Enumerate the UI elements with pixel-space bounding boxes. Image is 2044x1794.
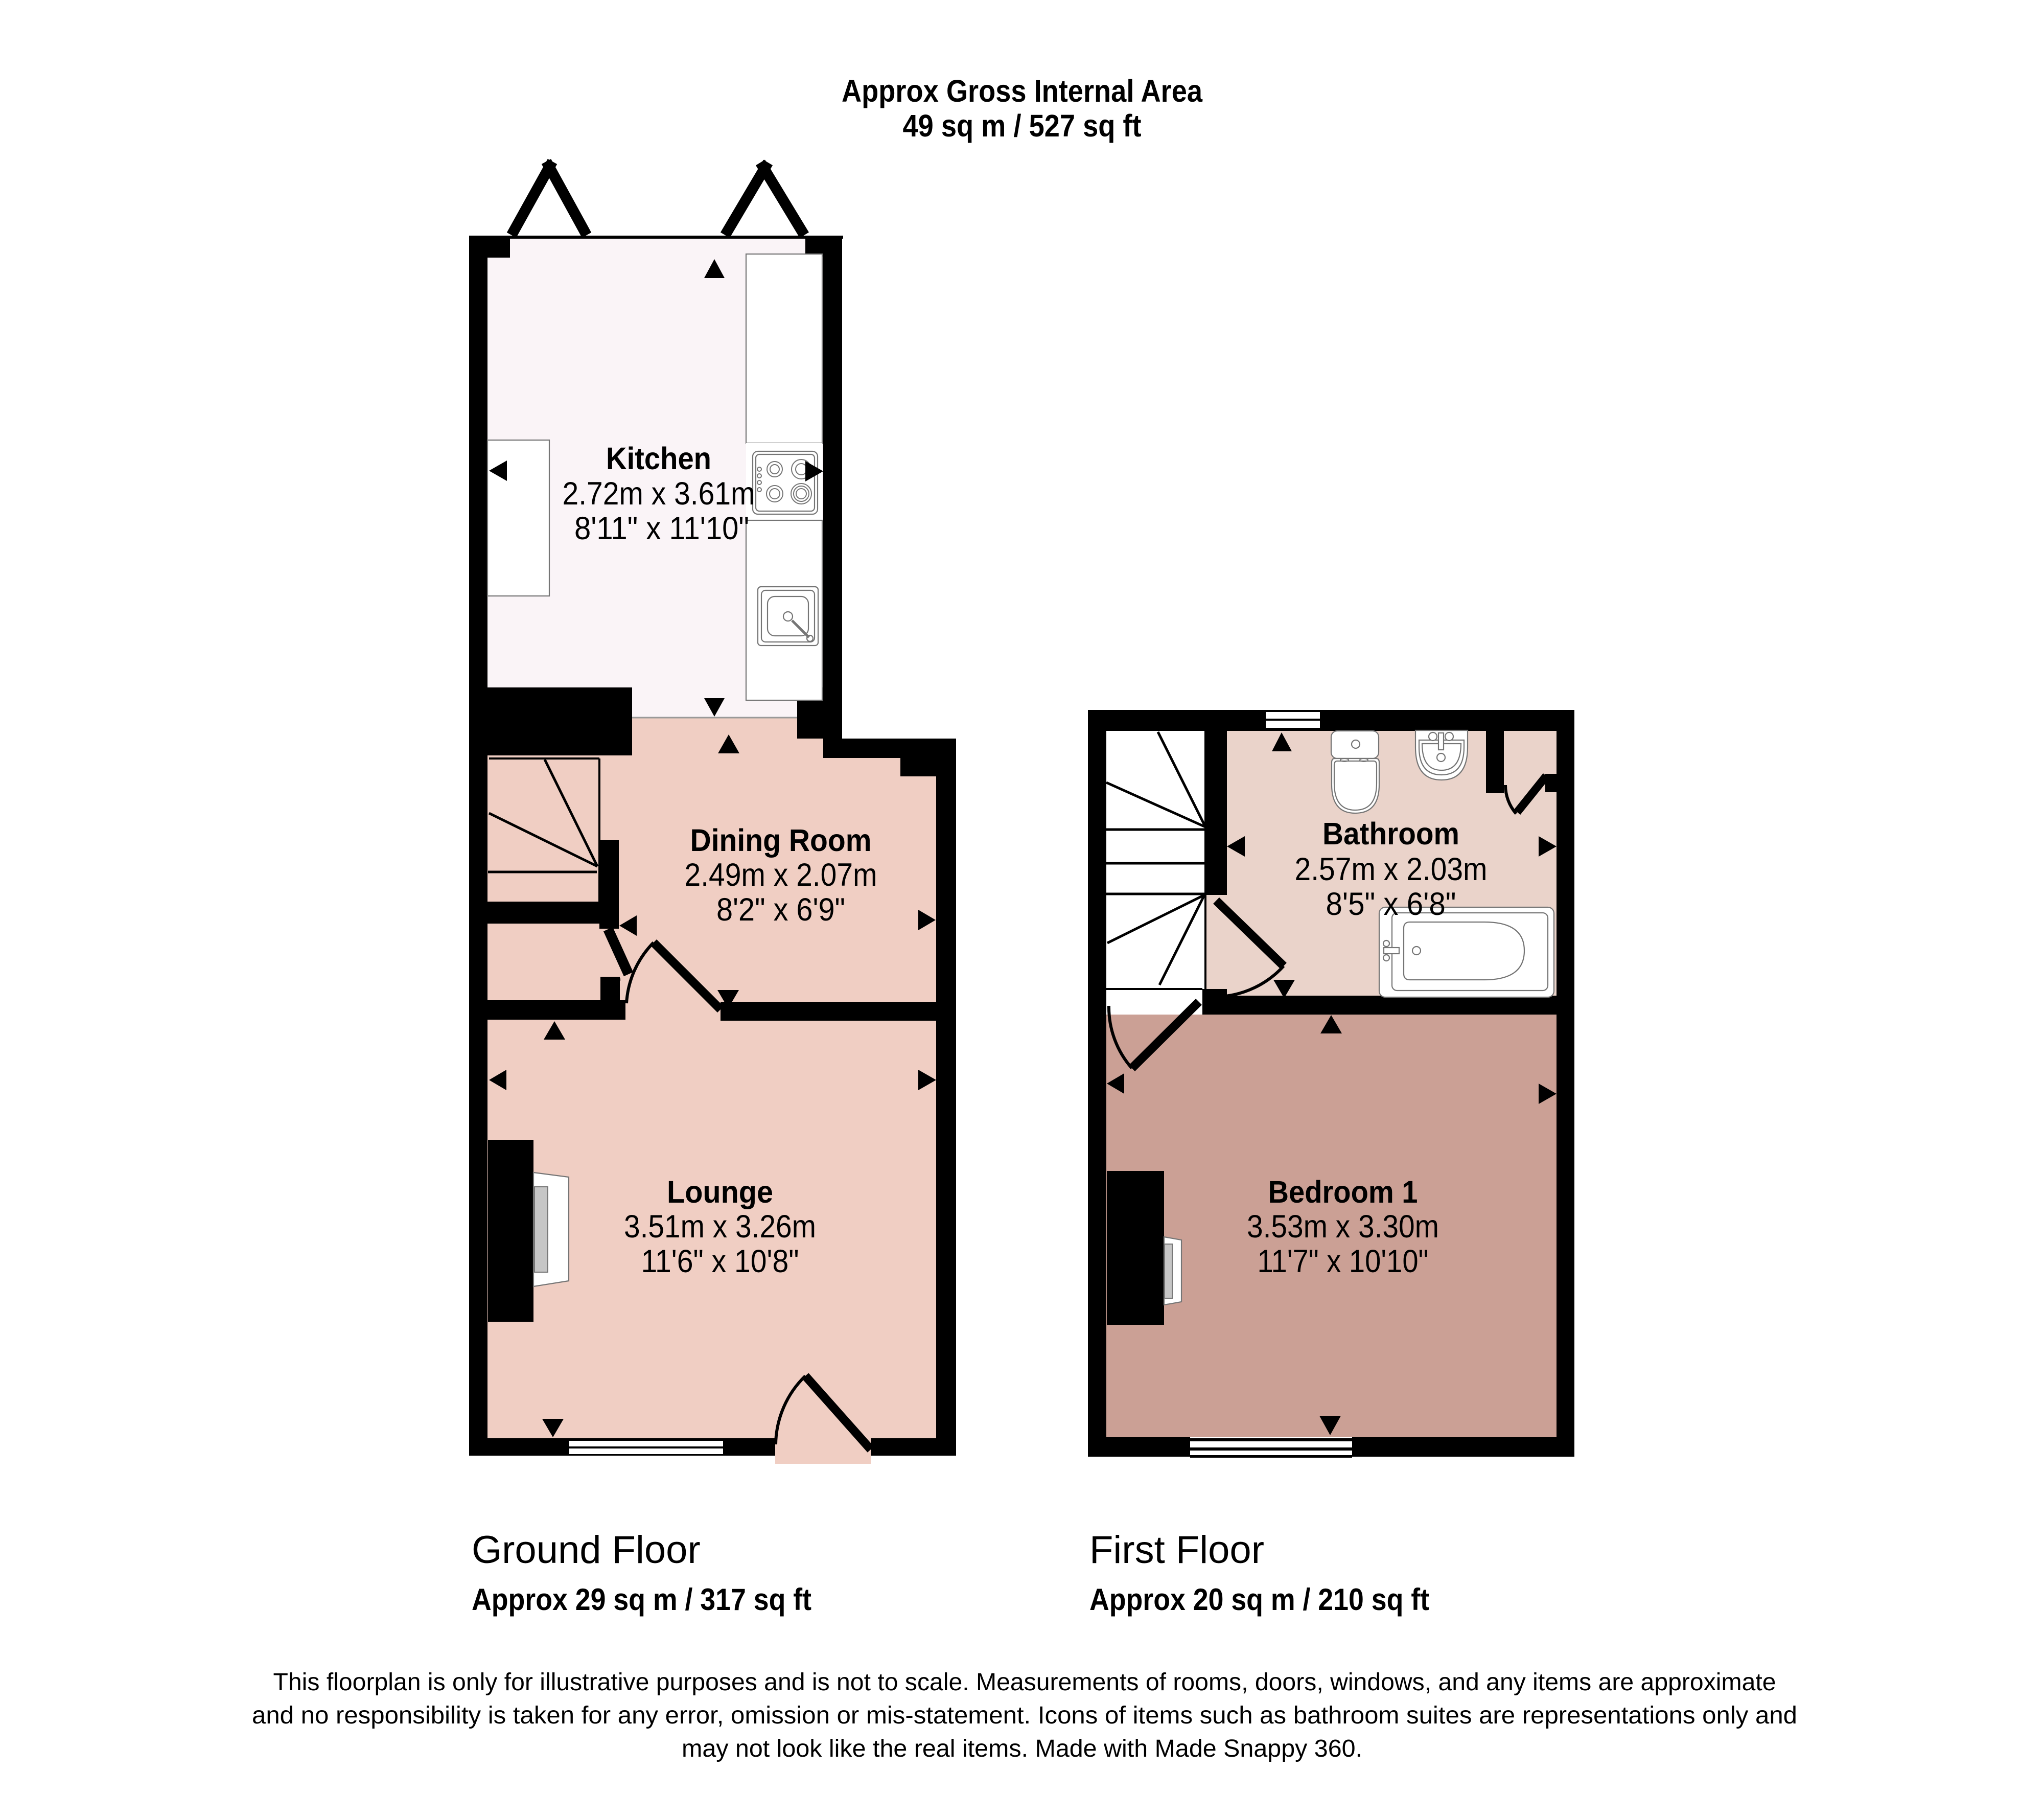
svg-text:Kitchen: Kitchen	[606, 441, 711, 476]
svg-text:8'5" x 6'8": 8'5" x 6'8"	[1326, 886, 1456, 922]
svg-text:2.57m x 2.03m: 2.57m x 2.03m	[1295, 852, 1488, 887]
svg-text:may not look like the real ite: may not look like the real items. Made w…	[682, 1735, 1362, 1762]
svg-text:Dining Room: Dining Room	[690, 823, 872, 858]
svg-text:Approx 29 sq m / 317 sq ft: Approx 29 sq m / 317 sq ft	[472, 1582, 811, 1617]
svg-text:8'2" x 6'9": 8'2" x 6'9"	[716, 892, 845, 928]
svg-text:First Floor: First Floor	[1089, 1528, 1264, 1572]
svg-text:Bathroom: Bathroom	[1322, 816, 1459, 851]
svg-text:3.51m x 3.26m: 3.51m x 3.26m	[624, 1209, 816, 1245]
svg-text:2.72m x 3.61m: 2.72m x 3.61m	[563, 476, 755, 512]
svg-text:Lounge: Lounge	[667, 1175, 773, 1209]
svg-text:Bedroom 1: Bedroom 1	[1268, 1175, 1418, 1209]
svg-text:Approx 20 sq m / 210 sq ft: Approx 20 sq m / 210 sq ft	[1089, 1582, 1429, 1617]
svg-text:11'7" x 10'10": 11'7" x 10'10"	[1258, 1244, 1429, 1279]
svg-text:Ground Floor: Ground Floor	[472, 1528, 701, 1572]
svg-text:Approx Gross Internal Area: Approx Gross Internal Area	[842, 74, 1203, 108]
svg-text:49 sq m / 527 sq ft: 49 sq m / 527 sq ft	[903, 108, 1142, 143]
svg-text:8'11" x 11'10": 8'11" x 11'10"	[574, 511, 749, 546]
svg-text:This floorplan is only for ill: This floorplan is only for illustrative …	[273, 1669, 1776, 1696]
svg-text:2.49m x 2.07m: 2.49m x 2.07m	[685, 857, 877, 893]
svg-text:3.53m x 3.30m: 3.53m x 3.30m	[1247, 1209, 1439, 1245]
svg-text:and no responsibility is taken: and no responsibility is taken for any e…	[252, 1702, 1797, 1729]
svg-text:11'6" x 10'8": 11'6" x 10'8"	[641, 1244, 799, 1279]
